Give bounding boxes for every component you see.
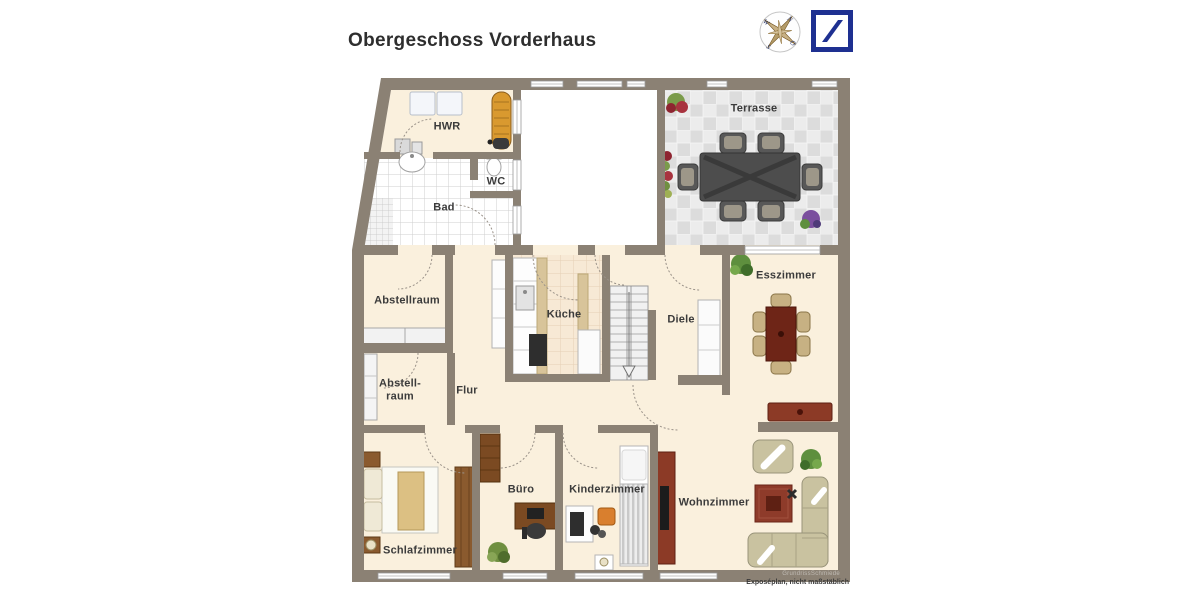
hall-cabinet <box>698 300 720 376</box>
storage-shelf-b <box>405 328 448 344</box>
armchair <box>753 440 793 473</box>
floorplan-svg <box>352 78 850 582</box>
dryer <box>437 92 462 115</box>
compass-rose-icon: N O S W <box>757 9 803 60</box>
staircase <box>610 286 648 380</box>
sideboard-dining <box>768 403 832 421</box>
page-title: Obergeschoss Vorderhaus <box>348 30 596 52</box>
washer <box>410 92 435 115</box>
stove <box>529 334 547 366</box>
bank-logo-icon <box>811 10 853 57</box>
sink <box>399 152 425 172</box>
floorplan: HWR WC Bad Terrasse Abstellraum Küche Di… <box>352 78 850 582</box>
kids-bed <box>620 446 648 566</box>
storage-shelf-c <box>364 354 377 420</box>
rug-coffee-table <box>755 485 796 522</box>
floor-open-room <box>521 90 657 245</box>
storage-shelf-a <box>362 328 405 344</box>
kids-nightstand <box>595 555 613 570</box>
bath-cabinet <box>395 139 410 154</box>
plan-footnote: Exposéplan, nicht maßstäblich <box>352 579 849 586</box>
